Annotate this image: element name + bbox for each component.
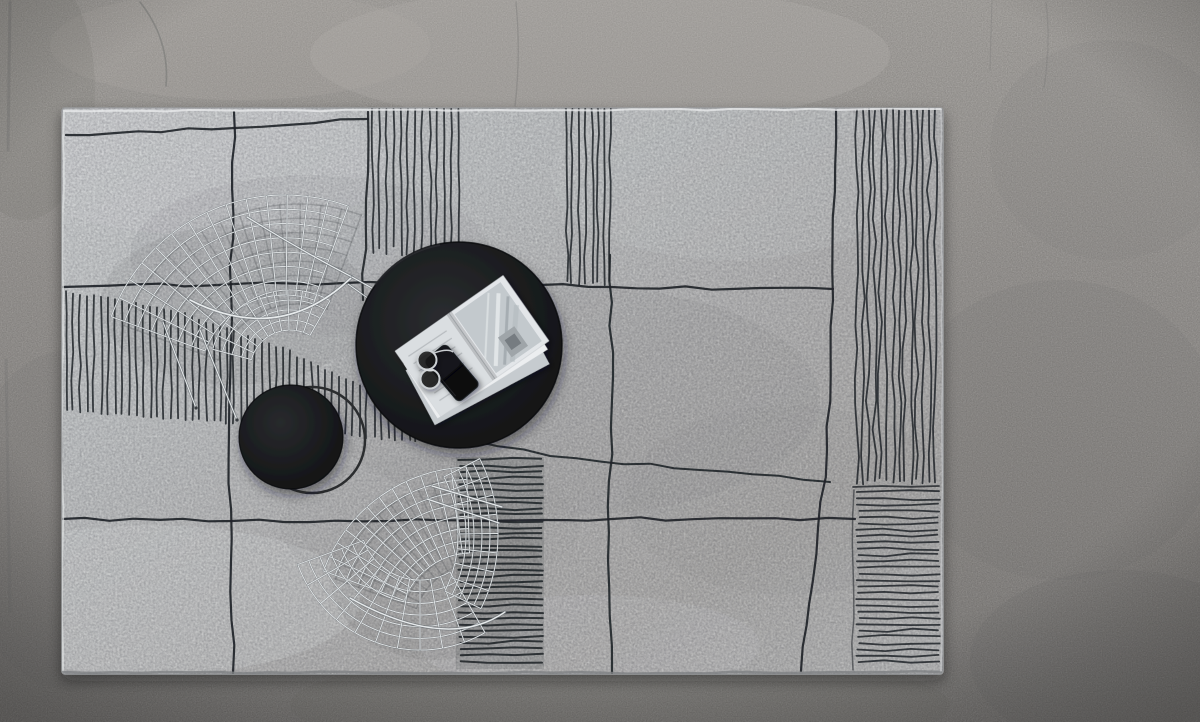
photograph-scene: Overhead photo: patterned gray rug on co…	[0, 0, 1200, 722]
glasses-lens-2	[421, 370, 440, 389]
scene-svg: Overhead photo: patterned gray rug on co…	[0, 0, 1200, 722]
glasses-lens-1	[418, 351, 437, 370]
